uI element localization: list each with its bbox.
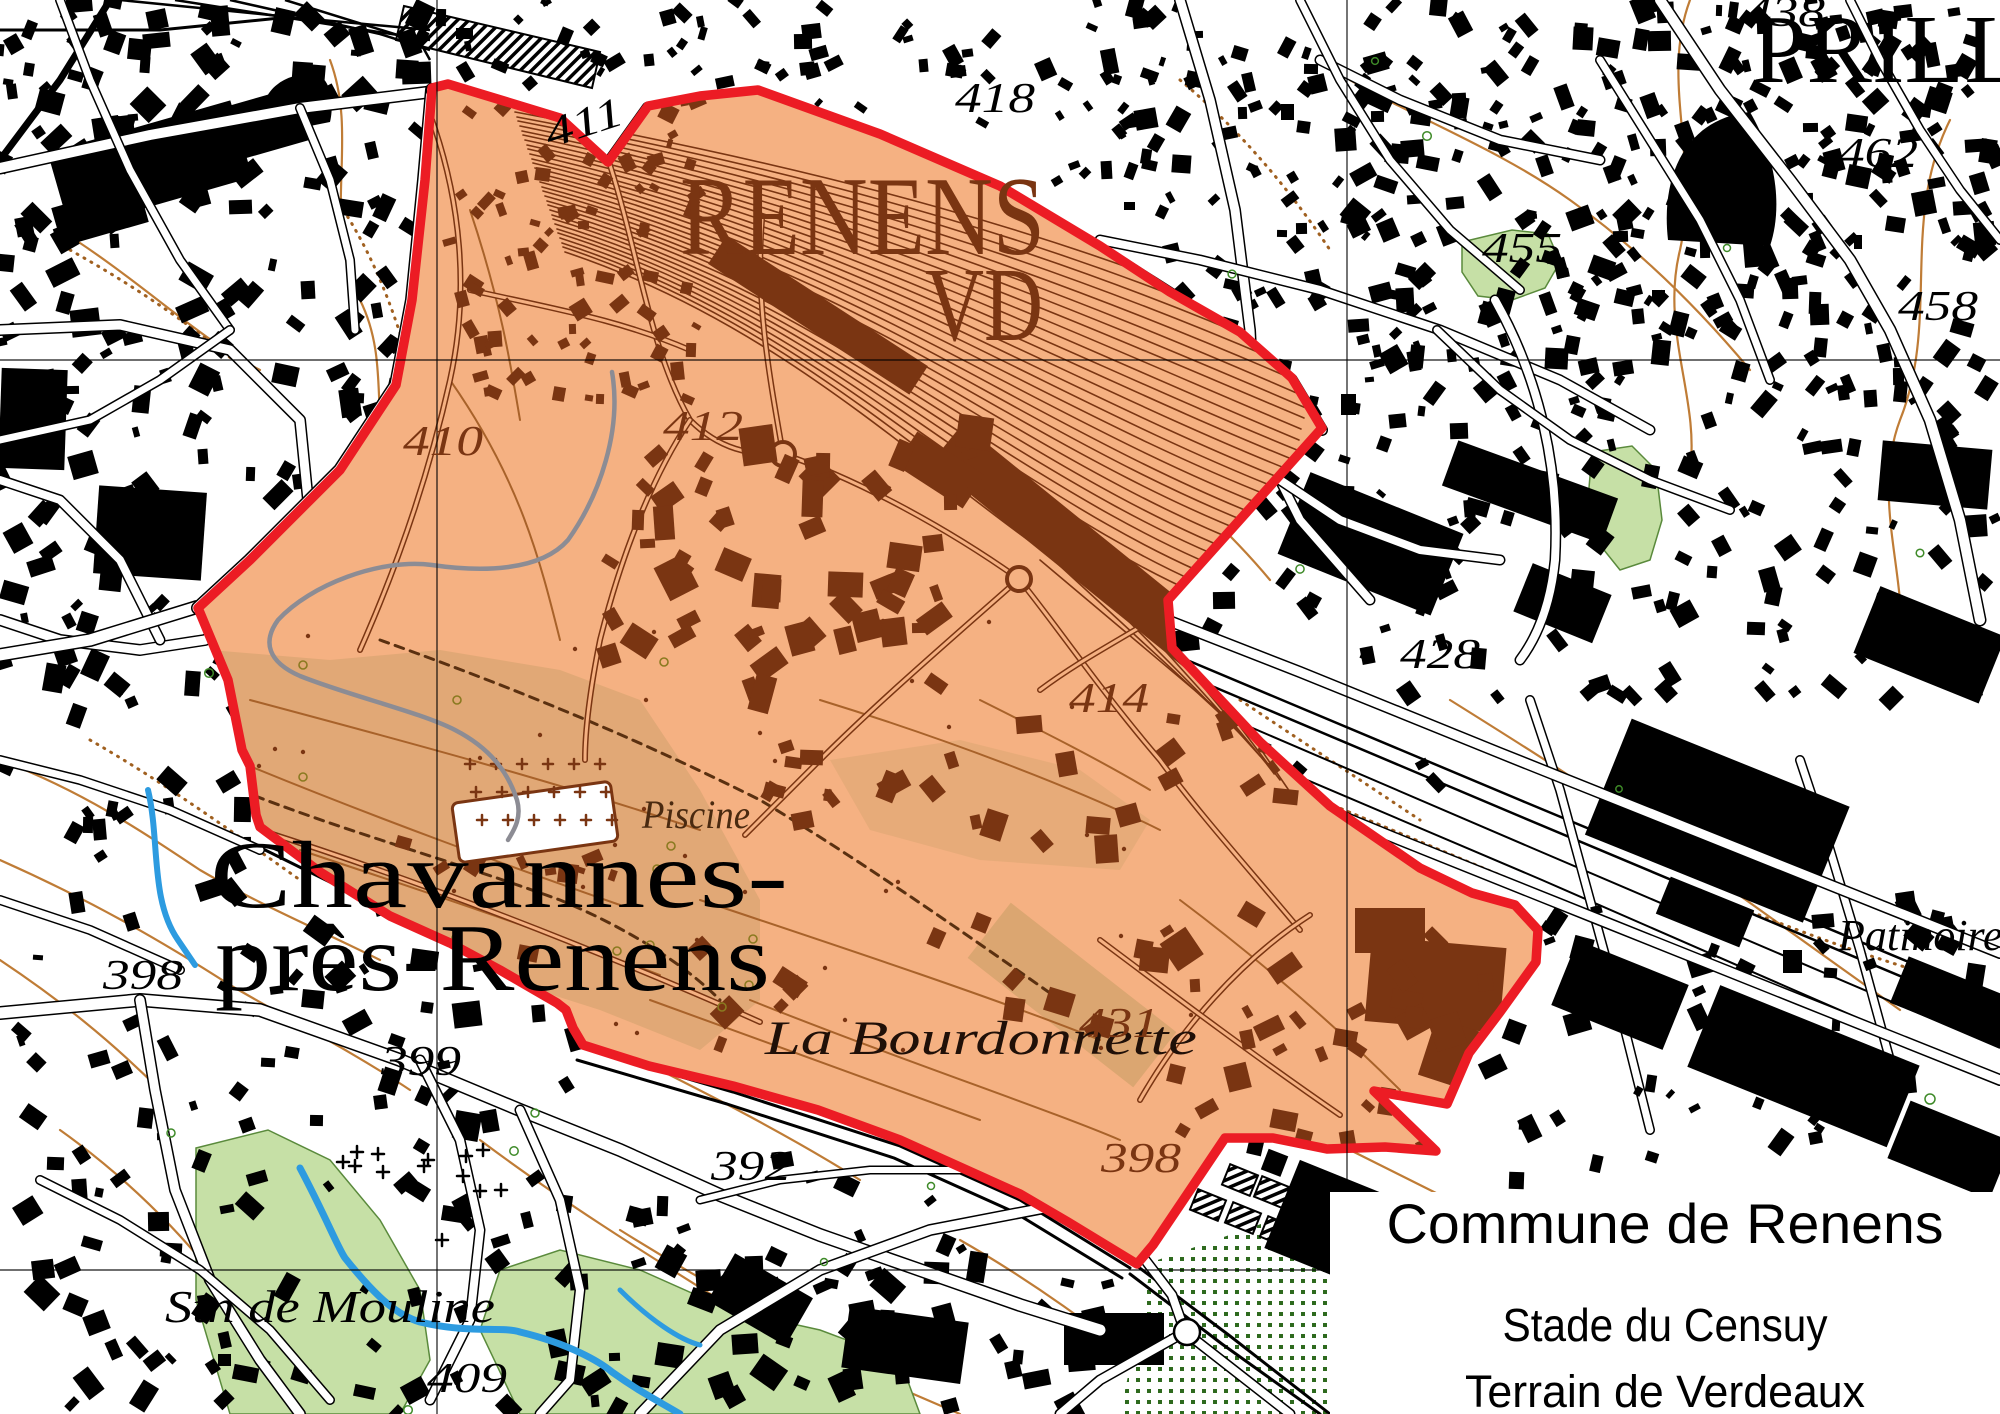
svg-text:398: 398 <box>102 953 183 999</box>
svg-text:392: 392 <box>710 1144 791 1190</box>
svg-text:431: 431 <box>1079 1001 1159 1047</box>
svg-text:399: 399 <box>380 1039 461 1085</box>
svg-text:462: 462 <box>1838 131 1918 177</box>
svg-text:Stade du Censuy: Stade du Censuy <box>1503 1299 1828 1351</box>
svg-text:près-Renens: près-Renens <box>215 905 770 1011</box>
svg-text:458: 458 <box>1898 284 1978 330</box>
svg-text:455: 455 <box>1482 226 1562 272</box>
svg-text:398: 398 <box>1100 1136 1181 1182</box>
svg-text:Stn de Mouline: Stn de Mouline <box>165 1281 495 1332</box>
svg-text:438: 438 <box>1745 0 1825 36</box>
svg-text:412: 412 <box>663 404 743 450</box>
svg-text:VD: VD <box>925 246 1043 363</box>
svg-text:Commune de Renens: Commune de Renens <box>1387 1192 1944 1255</box>
svg-text:414: 414 <box>1069 676 1149 722</box>
svg-text:Terrain de Verdeaux: Terrain de Verdeaux <box>1465 1366 1865 1414</box>
svg-text:Patinoire: Patinoire <box>1837 911 2000 960</box>
svg-text:Piscine: Piscine <box>641 792 750 837</box>
svg-text:418: 418 <box>955 76 1035 122</box>
svg-text:410: 410 <box>403 419 483 465</box>
svg-text:409: 409 <box>427 1356 507 1402</box>
svg-text:428: 428 <box>1400 632 1480 678</box>
